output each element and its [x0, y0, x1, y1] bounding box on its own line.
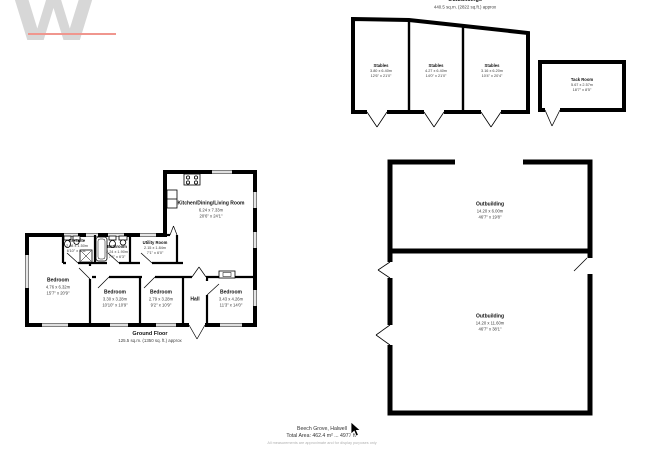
room-label-hall: Hall	[190, 297, 199, 304]
room-label-stable-2: Stables 4.27 x 6.40m 14'0" x 21'0"	[425, 63, 447, 80]
ground-floor-caption: Ground Floor 125.5 sq.m. (1350 sq. ft.) …	[118, 331, 181, 343]
house-building	[24, 169, 258, 339]
floorplan-page: W	[0, 0, 650, 450]
room-label-stable-1: Stables 3.80 x 6.40m 12'6" x 21'0"	[370, 63, 392, 80]
room-label-utility: Utility Room 2.15 x 1.84m 7'1" x 6'0"	[143, 240, 168, 257]
disclaimer: All measurements are approximate and for…	[267, 441, 376, 445]
room-label-outbuilding-upper: Outbuilding 14.20 x 6.00m 46'7" x 19'8"	[476, 202, 504, 221]
room-label-ensuite: En suite 2.08 x 1.50m 6'10" x 4'11"	[66, 238, 88, 255]
room-label-bedroom-3: Bedroom 2.79 x 3.28m 9'2" x 10'9"	[149, 290, 173, 309]
room-label-bedroom-4: Bedroom 3.43 x 4.26m 11'3" x 14'0"	[219, 290, 243, 309]
floorplan-linework	[0, 0, 650, 450]
room-label-bedroom-2: Bedroom 3.30 x 3.28m 10'10" x 10'9"	[102, 290, 127, 309]
tack-room-building	[540, 62, 624, 126]
outbuilding-block	[376, 156, 595, 413]
room-label-kitchen: Kitchen/Dining/Living Room 6.24 x 7.33m …	[178, 201, 245, 220]
mouse-cursor-icon	[350, 422, 362, 438]
room-label-master-bedroom: Bedroom 4.76 x 6.32m 15'7" x 20'9"	[46, 278, 70, 297]
room-label-stable-3: Stables 3.16 x 6.20m 10'4" x 20'4"	[481, 63, 503, 80]
room-label-tack-room: Tack Room 5.67 x 2.57m 18'7" x 8'5"	[571, 77, 593, 94]
outbuildings-area: 440.5 sq.m. (2822 sq.ft.) approx	[434, 5, 496, 10]
room-label-bathroom: Bathroom 2.24 x 1.90m 7'4" x 6'3"	[106, 244, 128, 261]
room-label-outbuilding-lower: Outbuilding 14.20 x 11.60m 46'7" x 38'1"	[476, 314, 505, 333]
outbuildings-title: Outbuildings	[448, 0, 482, 3]
